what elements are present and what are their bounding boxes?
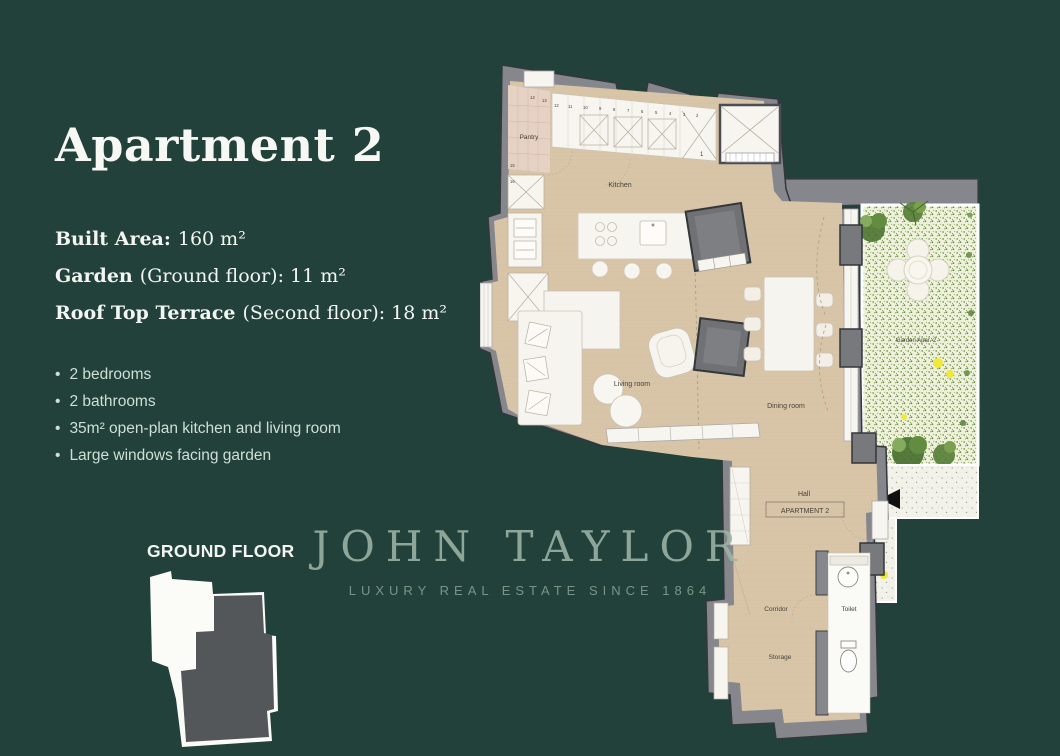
detail-label: Built Area: <box>55 228 171 250</box>
feature-item: Large windows facing garden <box>55 447 341 465</box>
entry-door-gap <box>872 501 888 539</box>
kitchen-label: Kitchen <box>608 182 631 189</box>
hall-label: Hall <box>798 491 811 498</box>
detail-label: Garden <box>55 265 133 287</box>
column <box>686 203 751 272</box>
feature-item: 35m² open-plan kitchen and living room <box>55 420 341 438</box>
living-room-label: Living room <box>614 381 650 388</box>
keyplan-silhouette <box>143 569 293 755</box>
detail-label: Roof Top Terrace <box>55 302 236 324</box>
bay-window <box>480 283 492 347</box>
toilet-wall <box>816 631 828 715</box>
svg-text:13: 13 <box>542 98 547 103</box>
toilet-wall <box>816 551 828 595</box>
closet <box>714 603 728 639</box>
page: Apartment 2 Built Area:160 m² Garden(Gro… <box>0 0 1060 756</box>
svg-text:14: 14 <box>530 95 535 100</box>
detail-built-area: Built Area:160 m² <box>55 228 447 250</box>
detail-value: (Ground floor): 11 m² <box>140 265 346 287</box>
feature-item: 2 bedrooms <box>55 366 341 384</box>
window-pier <box>840 225 862 265</box>
stools <box>592 261 672 279</box>
window-pier <box>840 329 862 367</box>
svg-text:11: 11 <box>568 104 573 109</box>
elevator <box>720 105 780 163</box>
column <box>694 318 750 376</box>
feature-list: 2 bedrooms 2 bathrooms 35m² open-plan ki… <box>55 366 341 474</box>
detail-value: (Second floor): 18 m² <box>243 302 448 324</box>
detail-roof-terrace: Roof Top Terrace(Second floor): 18 m² <box>55 302 447 324</box>
page-title: Apartment 2 <box>55 118 384 172</box>
svg-text:10: 10 <box>583 105 588 110</box>
garden-label: Garden Apar. 2 <box>896 338 937 344</box>
sink <box>838 567 858 587</box>
feature-item: 2 bathrooms <box>55 393 341 411</box>
ground-floor-label: GROUND FLOOR <box>147 541 294 562</box>
left-cabinets <box>508 175 548 321</box>
dining-room-label: Dining room <box>767 403 805 410</box>
window <box>524 71 554 87</box>
toilet-label: Toilet <box>841 606 856 613</box>
corridor-label: Corridor <box>764 606 788 613</box>
toilet: Toilet <box>828 553 870 713</box>
svg-text:16: 16 <box>510 179 515 184</box>
coffee-table <box>610 395 642 427</box>
detail-garden: Garden(Ground floor): 11 m² <box>55 265 447 287</box>
window-pier <box>852 433 876 463</box>
detail-value: 160 m² <box>178 228 246 250</box>
sofa-pillows <box>523 322 551 416</box>
sink-counter <box>830 556 868 565</box>
apartment-label: APARTMENT 2 <box>781 508 829 515</box>
storage-label: Storage <box>769 654 792 661</box>
floorplan: Garden Apar. 2 Pantry <box>480 55 1060 755</box>
pantry-label: Pantry <box>520 134 540 141</box>
svg-text:12: 12 <box>554 103 559 108</box>
closet <box>714 647 728 699</box>
svg-text:15: 15 <box>510 163 515 168</box>
dining-table <box>764 277 814 371</box>
wc <box>841 641 857 672</box>
detail-list: Built Area:160 m² Garden(Ground floor): … <box>55 228 447 339</box>
